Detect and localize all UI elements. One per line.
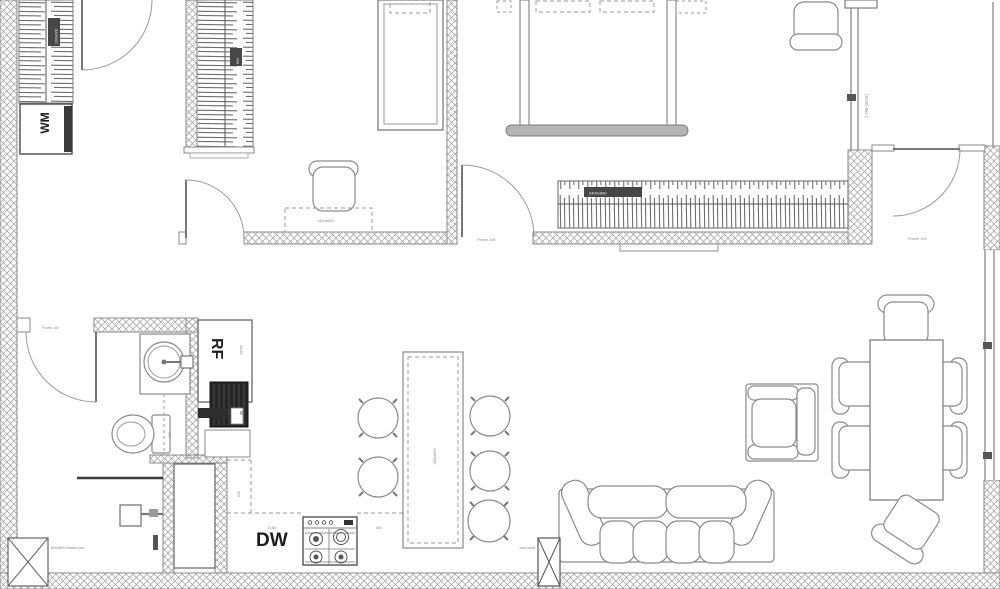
living-room: vent shaft (519, 295, 967, 586)
window-latch-icon (847, 94, 856, 101)
nightstand-left (497, 1, 511, 12)
boiler-handle-icon (198, 408, 228, 418)
desk-chair (309, 161, 358, 211)
balcony-door-wall-right (959, 145, 985, 151)
wardrobe-dim: 2400x600 (589, 191, 607, 196)
vent-note: vent shaft (519, 546, 535, 550)
entry-door (82, 0, 152, 70)
sofa-seat-cushion (600, 521, 635, 563)
shower-tray (8, 538, 48, 586)
armchair-seat (752, 399, 796, 447)
dishwasher-label: DW (256, 530, 288, 551)
island: 1800x600 (403, 352, 463, 548)
washing-machine: WM (20, 104, 72, 154)
desk-dim: 1400x600 (317, 219, 334, 223)
living-room-window (981, 250, 1000, 480)
floor-plan-drawing: 1 768 (2615) Proem 100 Proem 100 Proem 1… (0, 0, 1000, 589)
stool (468, 500, 510, 542)
drain-pipe-icon (153, 535, 158, 550)
bath-screen-dim: 600 (168, 432, 172, 438)
armchair-back (797, 388, 815, 455)
closet-left-dim: 1600x600 (55, 29, 59, 44)
closet-plinth-2 (190, 153, 248, 158)
wall-bedroom-divider (447, 0, 457, 244)
fridge-label: RF (208, 338, 225, 360)
duct (174, 464, 215, 568)
boiler-dim: 60 (239, 411, 243, 415)
nightstand-right (676, 1, 706, 13)
wall-right-upper (984, 146, 1000, 250)
tv-shelf (620, 244, 718, 251)
toilet (112, 415, 170, 453)
desk: 1400x600 (285, 208, 372, 232)
washer-label: WM (38, 112, 52, 133)
sofa-back-cushion (588, 486, 668, 518)
balcony-door-label: Proem 100 (908, 237, 927, 241)
dining-set (832, 295, 967, 567)
dining-chair (832, 422, 875, 478)
wall-duct-right (215, 463, 227, 573)
island-dim: 1800x600 (433, 448, 437, 465)
bedroom-door-label: Proem 100 (477, 238, 496, 242)
bedroom-window-dim: 1 768 (2615) (864, 94, 869, 118)
balcony-door-wall-left (872, 145, 894, 151)
walls (0, 0, 1000, 589)
stool (358, 457, 398, 497)
shower: 800x800 shower pan (8, 478, 163, 586)
stove-display-icon (344, 520, 353, 525)
bedroom: 2400x600 (497, 0, 848, 251)
sink (140, 334, 193, 394)
stool (470, 451, 510, 491)
bedroom-window: 1 768 (2615) (845, 0, 877, 150)
wall-closet-divider (186, 0, 197, 153)
wall-corridor-top-left (244, 232, 447, 244)
sofa (558, 476, 775, 563)
wall-bathroom-top (94, 318, 198, 332)
balcony-door: Proem 100 (893, 149, 960, 241)
tall-wardrobe (378, 0, 443, 130)
wall-pier-balcony (848, 150, 872, 244)
sofa-seat-cushion (699, 521, 734, 563)
study-room: 1400x600 (285, 0, 443, 232)
armchair (746, 384, 818, 461)
bedroom-wardrobe: 2400x600 (558, 181, 848, 228)
dining-chair (878, 295, 934, 344)
wall-corridor-top-right (533, 232, 848, 244)
stool (358, 398, 398, 438)
walk-in-closet: 1600x600 WM 600 (19, 0, 254, 158)
bath-door-jamb (17, 318, 30, 332)
base-cabinet (205, 430, 250, 457)
sofa-back-cushion (666, 486, 746, 518)
counter-depth-dim: 600 (237, 491, 241, 497)
closet-door-jamb (179, 232, 186, 244)
wall-right-lower (984, 480, 1000, 573)
wall-bottom (0, 573, 1000, 589)
shower-mixer-icon (120, 505, 141, 526)
faucet-icon (181, 356, 193, 368)
bed (506, 0, 688, 136)
shower-note: 800x800 shower pan (51, 546, 84, 550)
sofa-seat-cushion (666, 521, 701, 563)
kitchen-column: RF 60x60 60 (198, 320, 252, 457)
armchair-arm (748, 386, 798, 400)
bedroom-chair (790, 2, 842, 50)
dining-chair (832, 358, 875, 414)
pillow (536, 1, 590, 12)
fridge-dim: 60x60 (239, 345, 243, 355)
closet-plinth (184, 147, 254, 153)
closet-room-door (186, 180, 244, 238)
dining-table (870, 340, 943, 500)
pillow (600, 1, 654, 12)
bedroom-door: Proem 100 (462, 165, 534, 242)
window-latch-icon (983, 452, 992, 459)
bathroom-door-label: Proem 100 (42, 326, 59, 330)
closet-right-dim: 600 (236, 58, 240, 64)
shower-valve-icon (149, 509, 158, 517)
window-latch-icon (983, 342, 992, 349)
counter-dim: 600 (376, 526, 382, 530)
floor-plan: 1 768 (2615) Proem 100 Proem 100 Proem 1… (0, 0, 1000, 589)
stool (470, 396, 510, 436)
kitchen: 600 D-60 600 DW 1800x600 (227, 352, 510, 565)
wall-left (0, 0, 17, 573)
sofa-seat-cushion (633, 521, 668, 563)
stove (303, 517, 357, 565)
bed-footboard (506, 125, 688, 136)
bathroom-door: Proem 100 (26, 326, 96, 402)
wall-duct-left (163, 463, 174, 573)
